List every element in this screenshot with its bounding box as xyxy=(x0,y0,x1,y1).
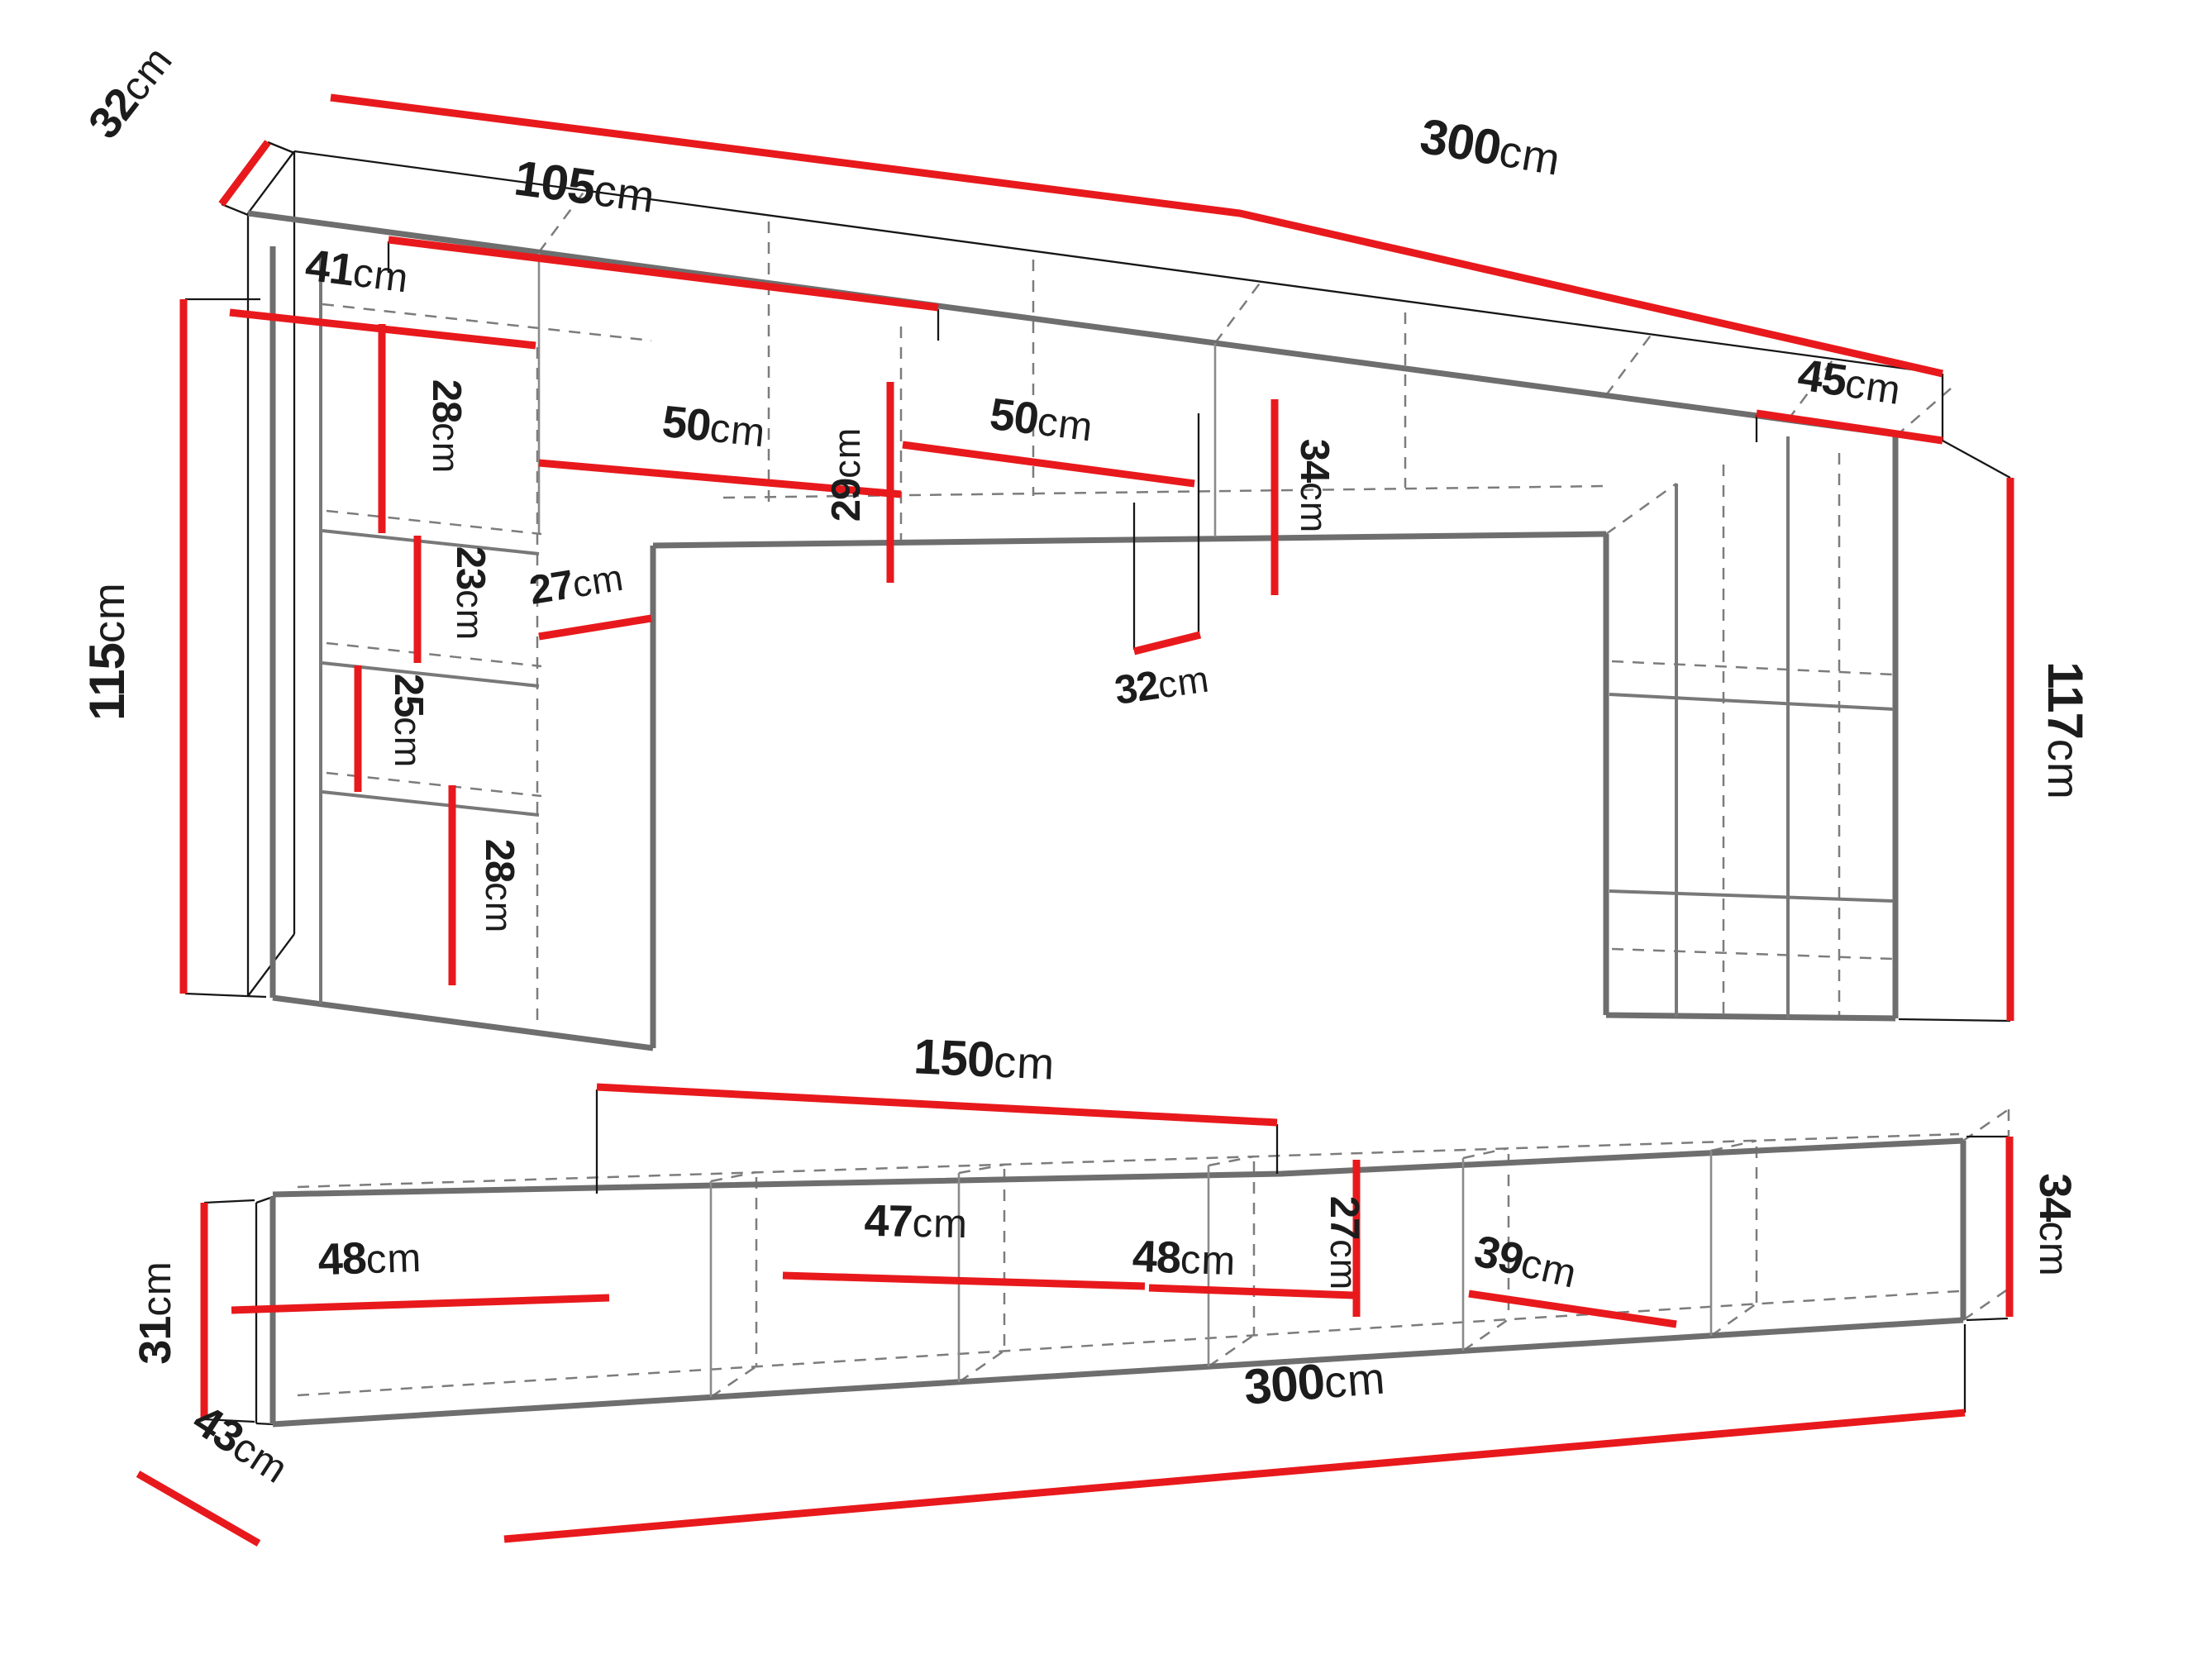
dim-tower-left-115cm: 115cm xyxy=(79,582,135,721)
dim-half-width-150cm: 150cm xyxy=(913,1028,1056,1089)
lower-dimension-lines xyxy=(138,1087,2009,1543)
dim-line-niche-depth-27 xyxy=(539,618,651,636)
dim-total-width-300cm: 300cm xyxy=(1416,108,1565,186)
dim-right-h-34cm: 34cm xyxy=(2030,1173,2080,1276)
dim-sec-w-48cm-mid: 48cm xyxy=(1132,1232,1237,1285)
dim-line-half-width-150 xyxy=(597,1087,1277,1123)
dim-line-sec-w-48a xyxy=(231,1298,609,1310)
dim-sec-w-39cm: 39cm xyxy=(1470,1226,1582,1298)
furniture-spec-sheet: 32cm 300cm 105cm 41cm 28cm 23cm 25cm 27c… xyxy=(0,0,2212,1659)
dim-cab-w-50cm-right: 50cm xyxy=(987,389,1096,451)
furniture-dimension-diagram: 32cm 300cm 105cm 41cm 28cm 23cm 25cm 27c… xyxy=(0,0,2212,1659)
dim-sec-w-47cm: 47cm xyxy=(864,1196,968,1247)
dim-sec-h-28cm-bottom: 28cm xyxy=(477,839,522,934)
dim-cab-w-50cm-left: 50cm xyxy=(660,397,768,457)
dim-line-cab-w-50b xyxy=(903,445,1194,484)
dim-cab-h-29cm: 29cm xyxy=(824,427,869,522)
dim-inner-h-27cm: 27cm xyxy=(1322,1196,1366,1291)
dim-depth-43cm: 43cm xyxy=(184,1395,298,1494)
dim-line-total-width-300b xyxy=(504,1413,1965,1539)
dim-line-sec-w-48b xyxy=(1149,1288,1353,1295)
dim-niche-depth-27cm: 27cm xyxy=(527,555,627,613)
lower-dimension-labels: 150cm 31cm 48cm 47cm 48cm 27cm 39cm 34cm… xyxy=(131,1028,2080,1493)
dim-sec-h-28cm-top: 28cm xyxy=(424,379,469,474)
dim-sec-h-23cm: 23cm xyxy=(448,546,493,641)
dim-line-sec-w-47 xyxy=(783,1275,1145,1286)
dim-mid-depth-32cm: 32cm xyxy=(1112,655,1212,713)
dim-line-depth-43 xyxy=(138,1474,259,1543)
dim-line-mid-depth-32 xyxy=(1134,635,1200,651)
dim-depth-left-32cm: 32cm xyxy=(79,36,182,148)
dim-line-inner-width-105 xyxy=(389,240,938,307)
dim-sec-h-25cm: 25cm xyxy=(386,674,431,769)
dim-total-width-300cm-bottom: 300cm xyxy=(1242,1348,1387,1414)
dim-left-h-31cm: 31cm xyxy=(131,1261,180,1364)
dim-tower-right-117cm: 117cm xyxy=(2038,661,2093,800)
dim-inner-width-105cm: 105cm xyxy=(511,150,658,223)
dim-bridge-h-34cm: 34cm xyxy=(1292,439,1337,534)
dim-sec-w-48cm-left: 48cm xyxy=(317,1232,422,1285)
dim-line-right-cab-45 xyxy=(1757,413,1943,441)
